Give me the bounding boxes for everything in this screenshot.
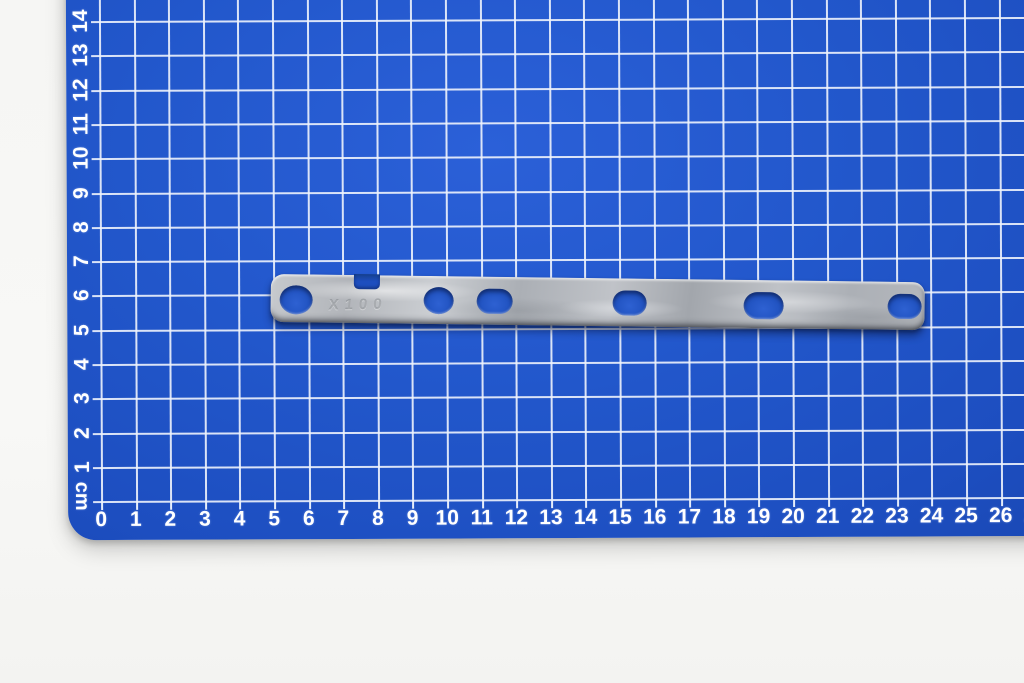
grid-line-vertical: [376, 0, 380, 500]
grid-line-vertical: [306, 0, 310, 500]
ruler-number-left: 3: [72, 380, 94, 416]
ruler-number-left: 4: [71, 346, 93, 382]
grid-line-vertical: [445, 0, 449, 500]
ruler-number-bottom: 20: [781, 506, 804, 528]
grid-line-vertical: [479, 0, 483, 499]
grid-line-horizontal: [92, 154, 1024, 160]
grid-line-horizontal: [91, 17, 1024, 23]
ruler-number-left: 2: [72, 415, 94, 451]
ruler-number-bottom: 5: [268, 508, 280, 530]
strip-hole: [887, 293, 921, 318]
ruler-number-bottom: 15: [608, 507, 631, 529]
ruler-number-bottom: 18: [712, 506, 735, 528]
grid-line-vertical: [825, 0, 829, 498]
ruler-number-left: 14: [70, 3, 92, 39]
ruler-number-bottom: 16: [643, 507, 666, 529]
ruler-number-bottom: 13: [539, 507, 562, 529]
strip-hole: [279, 285, 312, 314]
cutting-mat: 1413121110987654321 01234567891011121314…: [66, 0, 1024, 540]
ruler-number-left: 13: [70, 37, 92, 73]
grid-line-vertical: [237, 0, 241, 500]
grid-line-horizontal: [93, 497, 1024, 503]
ruler-number-bottom: 23: [885, 506, 908, 528]
strip-hole: [743, 291, 783, 319]
grid-line-vertical: [168, 0, 172, 501]
grid-line-horizontal: [92, 223, 1024, 229]
ruler-number-bottom: 6: [303, 508, 315, 530]
grid-line-horizontal: [91, 51, 1024, 57]
ruler-number-bottom: 7: [337, 508, 349, 530]
grid-line-horizontal: [91, 120, 1024, 126]
ruler-number-left: 7: [71, 243, 93, 279]
grid-line-vertical: [583, 0, 587, 499]
grid-line-vertical: [549, 0, 553, 499]
grid-line-vertical: [618, 0, 622, 499]
grid-line-vertical: [964, 0, 968, 497]
grid-line-horizontal: [93, 428, 1024, 434]
unit-label: cm: [71, 478, 93, 514]
strip-notch: [354, 274, 380, 289]
grid-line-vertical: [756, 0, 760, 498]
ruler-number-bottom: 17: [678, 506, 701, 528]
strip-hole: [424, 286, 454, 313]
grid-line-horizontal: [92, 188, 1024, 194]
grid-line-vertical: [998, 0, 1002, 497]
ruler-number-bottom: 2: [164, 509, 176, 531]
grid-line-vertical: [722, 0, 726, 498]
grid-line-vertical: [99, 0, 103, 501]
ruler-number-left: 12: [70, 72, 92, 108]
strip-hole: [477, 288, 513, 313]
grid-line-vertical: [341, 0, 345, 500]
grid-line-vertical: [272, 0, 276, 500]
grid-line-horizontal: [91, 85, 1024, 91]
ruler-number-bottom: 4: [234, 508, 246, 530]
ruler-number-left: 5: [71, 312, 93, 348]
ruler-number-bottom: 0: [95, 509, 107, 531]
grid-line-horizontal: [93, 394, 1024, 400]
grid-line-vertical: [652, 0, 656, 499]
ruler-number-bottom: 10: [435, 507, 458, 529]
grid-line-vertical: [203, 0, 207, 501]
grid-line-vertical: [410, 0, 414, 500]
grid-line-horizontal: [92, 360, 1024, 366]
grid-line-vertical: [514, 0, 518, 499]
ruler-number-bottom: 22: [851, 506, 874, 528]
ruler-number-bottom: 26: [989, 505, 1012, 527]
ruler-number-left: 11: [70, 106, 92, 142]
ruler-number-bottom: 25: [954, 505, 977, 527]
grid-line-vertical: [687, 0, 691, 498]
ruler-number-bottom: 12: [505, 507, 528, 529]
grid-line-vertical: [929, 0, 933, 497]
metal-strip: X100: [270, 274, 925, 330]
grid-line-vertical: [860, 0, 864, 498]
grid-line-vertical: [133, 0, 137, 501]
grid-line-vertical: [895, 0, 899, 498]
ruler-number-bottom: 8: [372, 508, 384, 530]
photo-canvas: 1413121110987654321 01234567891011121314…: [0, 0, 1024, 683]
ruler-number-bottom: 24: [920, 505, 943, 527]
grid-line-horizontal: [92, 257, 1024, 263]
ruler-number-bottom: 19: [747, 506, 770, 528]
ruler-number-left: 8: [71, 209, 93, 245]
strip-stamp-text: X100: [328, 296, 389, 314]
ruler-number-bottom: 14: [574, 507, 597, 529]
grid-line-horizontal: [93, 463, 1024, 469]
strip-hole: [613, 290, 647, 315]
ruler-number-bottom: 3: [199, 509, 211, 531]
ruler-number-bottom: 9: [407, 508, 419, 530]
ruler-number-bottom: 11: [471, 507, 493, 529]
ruler-number-bottom: 21: [816, 506, 839, 528]
ruler-number-left: 10: [71, 140, 93, 176]
ruler-number-bottom: 1: [130, 509, 142, 531]
ruler-number-left: 6: [71, 277, 93, 313]
ruler-number-left: 9: [71, 175, 93, 211]
grid-line-vertical: [791, 0, 795, 498]
